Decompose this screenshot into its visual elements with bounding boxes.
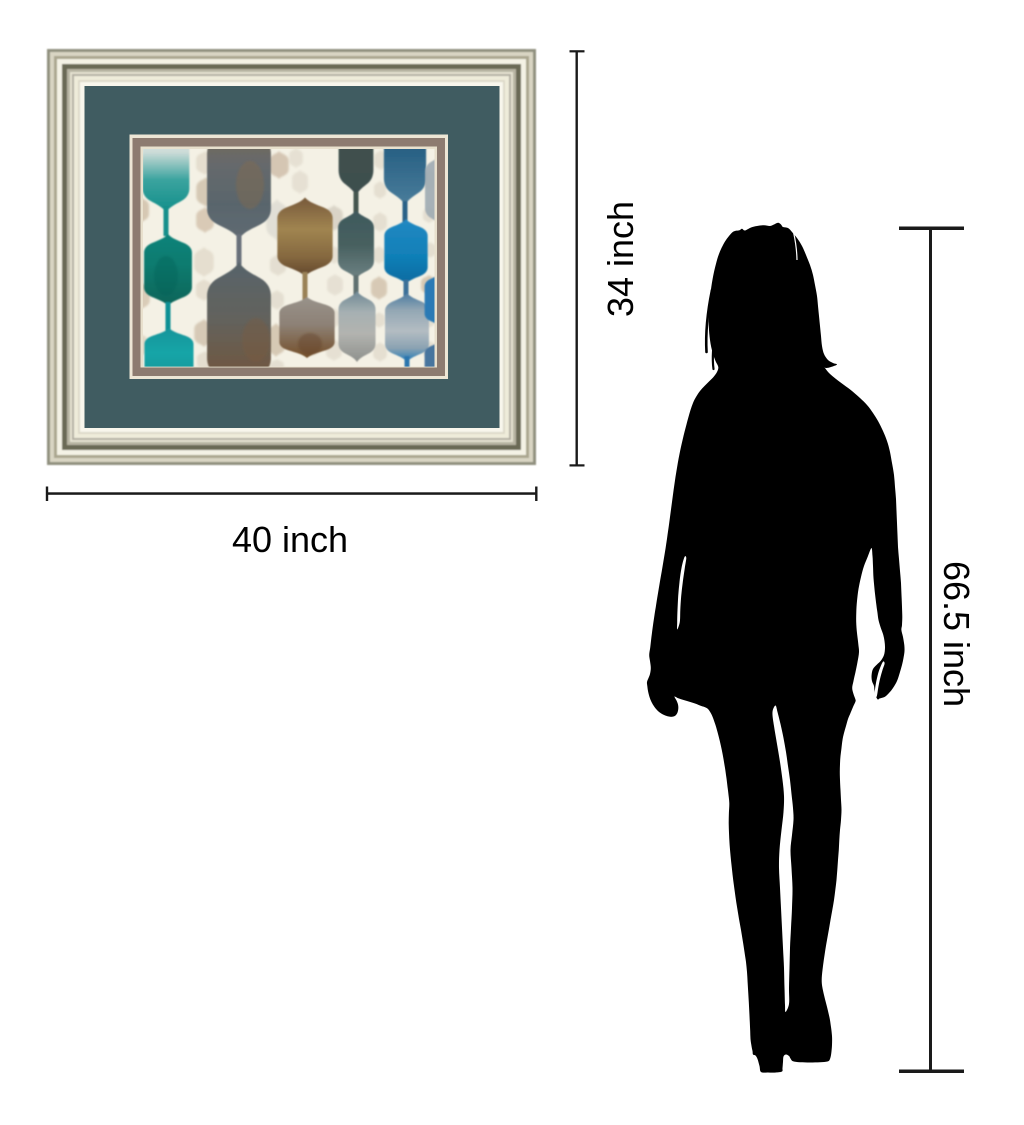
svg-text:40 inch: 40 inch (232, 519, 348, 560)
svg-text:66.5 inch: 66.5 inch (936, 561, 977, 707)
svg-text:34 inch: 34 inch (600, 201, 641, 317)
